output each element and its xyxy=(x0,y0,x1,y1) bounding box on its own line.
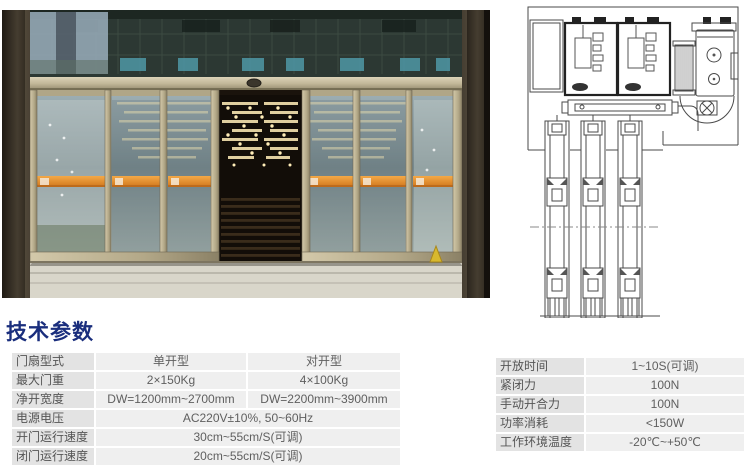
transom-glass xyxy=(30,10,462,77)
spec-label: 开门运行速度 xyxy=(12,429,94,446)
table-row: 开放时间 1~10S(可调) xyxy=(496,358,744,375)
spec-value: AC220V±10%, 50~60Hz xyxy=(96,410,400,427)
table-row: 门扇型式 单开型 对开型 xyxy=(12,353,400,370)
spec-value: 20cm~55cm/S(可调) xyxy=(96,448,400,465)
spec-value: 1~10S(可调) xyxy=(586,358,744,375)
spec-value: DW=2200mm~3900mm xyxy=(248,391,400,408)
spec-value: <150W xyxy=(586,415,744,432)
spec-label: 闭门运行速度 xyxy=(12,448,94,465)
spec-label: 净开宽度 xyxy=(12,391,94,408)
table-row: 紧闭力 100N xyxy=(496,377,744,394)
door-sensor xyxy=(247,79,261,87)
table-row: 开门运行速度 30cm~55cm/S(可调) xyxy=(12,429,400,446)
section-title: 技术参数 xyxy=(6,316,94,346)
spec-value: 30cm~55cm/S(可调) xyxy=(96,429,400,446)
spec-value: 4×100Kg xyxy=(248,372,400,389)
roller-carriage xyxy=(572,25,656,91)
spec-label: 手动开合力 xyxy=(496,396,584,413)
table-row: 手动开合力 100N xyxy=(496,396,744,413)
spec-label: 电源电压 xyxy=(12,410,94,427)
table-row: 电源电压 AC220V±10%, 50~60Hz xyxy=(12,410,400,427)
spec-label: 紧闭力 xyxy=(496,377,584,394)
spec-value: 单开型 xyxy=(96,353,246,370)
table-row: 功率消耗 <150W xyxy=(496,415,744,432)
belt-pulley xyxy=(673,41,695,95)
door-leaf-profiles xyxy=(530,121,660,318)
spec-sheet-page: { "section_title": "技术参数", "photo": { "n… xyxy=(0,0,746,472)
table-row: 最大门重 2×150Kg 4×100Kg xyxy=(12,372,400,389)
spec-value: 100N xyxy=(586,396,744,413)
spec-value: DW=1200mm~2700mm xyxy=(96,391,246,408)
spec-label: 功率消耗 xyxy=(496,415,584,432)
entrance-photo xyxy=(2,10,490,298)
spec-value: 对开型 xyxy=(248,353,400,370)
table-row: 净开宽度 DW=1200mm~2700mm DW=2200mm~3900mm xyxy=(12,391,400,408)
spec-value: 2×150Kg xyxy=(96,372,246,389)
mechanism-diagram xyxy=(520,3,742,318)
interior-stairs xyxy=(221,198,300,257)
spec-label: 最大门重 xyxy=(12,372,94,389)
open-doorway-interior xyxy=(219,90,302,263)
spec-label: 门扇型式 xyxy=(12,353,94,370)
spec-table-secondary: 开放时间 1~10S(可调) 紧闭力 100N 手动开合力 100N 功率消耗 … xyxy=(494,356,746,453)
spec-label: 工作环境温度 xyxy=(496,434,584,451)
spec-value: -20℃~+50℃ xyxy=(586,434,744,451)
spec-value: 100N xyxy=(586,377,744,394)
door-header-beam xyxy=(28,77,464,90)
table-row: 闭门运行速度 20cm~55cm/S(可调) xyxy=(12,448,400,465)
spec-table-main: 门扇型式 单开型 对开型 最大门重 2×150Kg 4×100Kg 净开宽度 D… xyxy=(10,351,402,467)
table-row: 工作环境温度 -20℃~+50℃ xyxy=(496,434,744,451)
spec-label: 开放时间 xyxy=(496,358,584,375)
